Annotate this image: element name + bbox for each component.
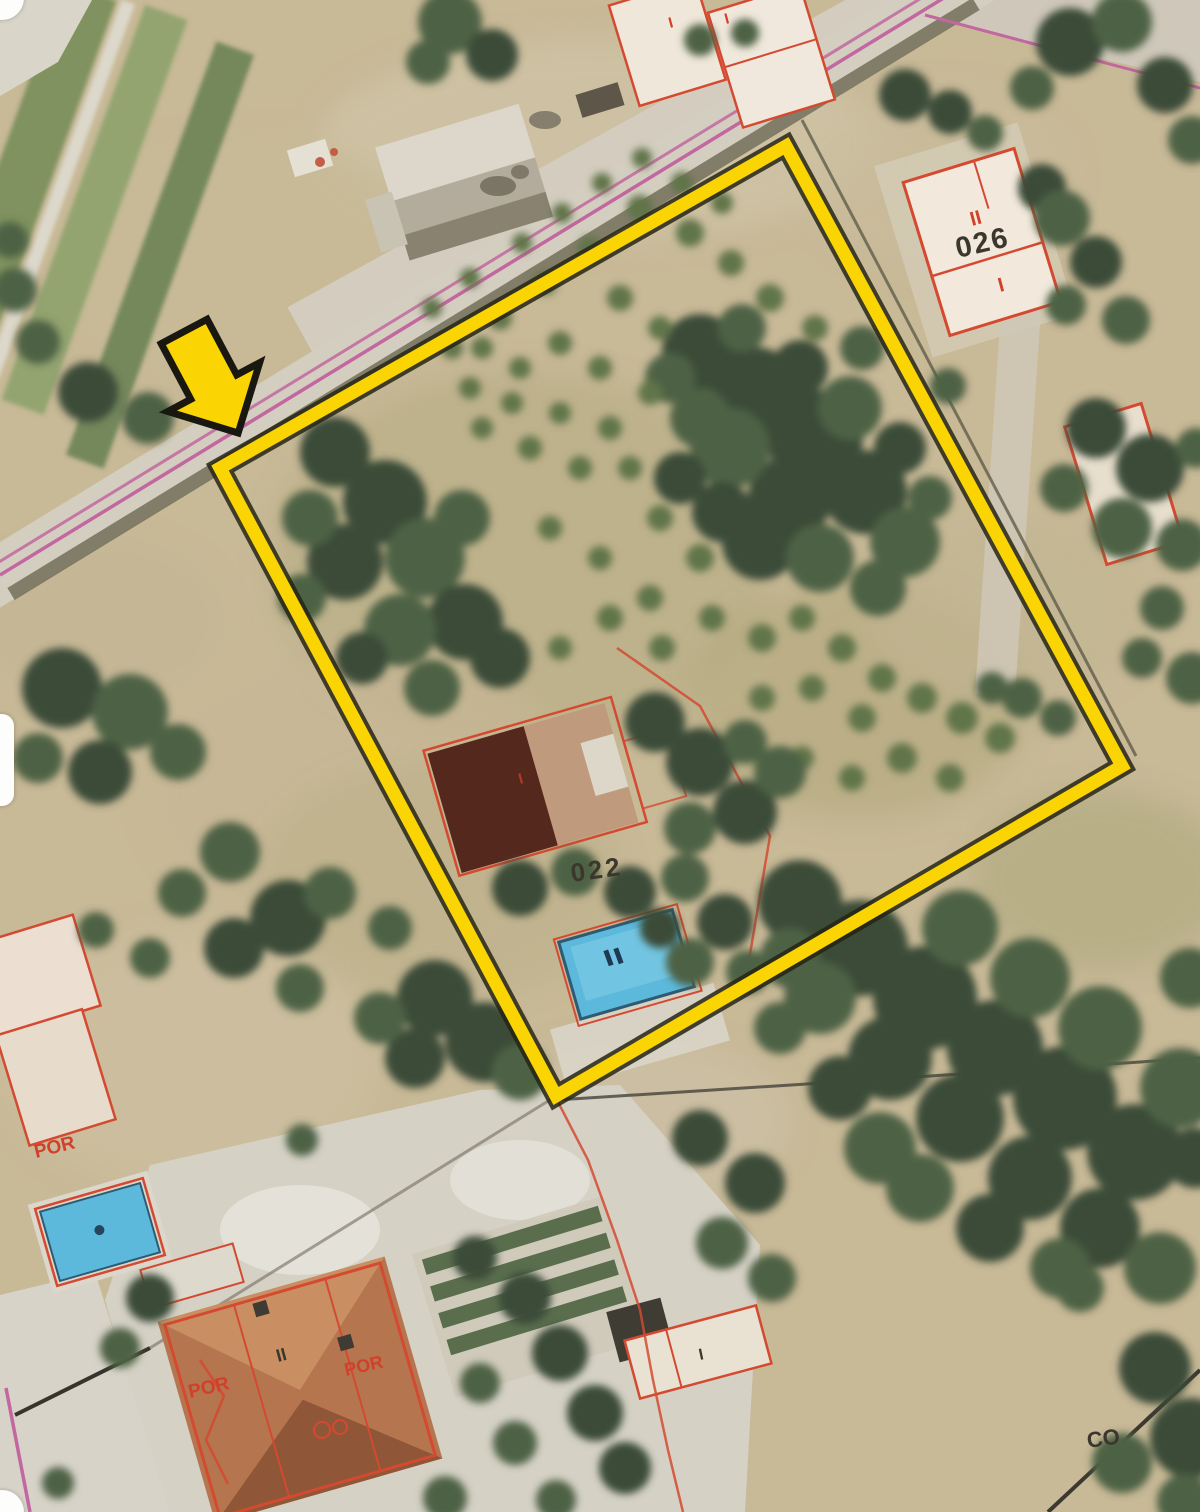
tree-canopy [1056, 1264, 1104, 1312]
tree-canopy [886, 1154, 954, 1222]
tree-canopy [648, 316, 672, 340]
pavement-highlight [220, 1185, 380, 1275]
tree-canopy [699, 605, 725, 631]
co-label: CO [1085, 1424, 1121, 1453]
tree-canopy [976, 672, 1008, 704]
tree-canopy [922, 890, 998, 966]
tree-canopy [985, 723, 1015, 753]
tree-canopy [1137, 57, 1193, 113]
tree-canopy [725, 1153, 785, 1213]
tree-canopy [460, 1363, 500, 1403]
tree-canopy [1046, 285, 1086, 325]
tree-canopy [1070, 236, 1122, 288]
tree-canopy [928, 90, 972, 134]
tree-canopy [661, 854, 709, 902]
tree-canopy [150, 724, 206, 780]
tree-canopy [336, 632, 388, 684]
tree-canopy [568, 456, 592, 480]
tree-canopy [786, 524, 854, 592]
tree-canopy [158, 869, 206, 917]
tree-canopy [58, 362, 118, 422]
tree-canopy [1002, 678, 1042, 718]
tree-canopy [282, 490, 338, 546]
tree-canopy [916, 1074, 1004, 1162]
tree-canopy [640, 908, 680, 948]
tree-canopy [946, 702, 978, 734]
tree-canopy [548, 636, 572, 660]
tree-canopy [848, 704, 876, 732]
tree-canopy [647, 505, 673, 531]
tree-canopy [453, 1236, 497, 1280]
tree-canopy [748, 1254, 796, 1302]
tree-canopy [637, 585, 663, 611]
tree-canopy [1092, 498, 1152, 558]
tree-canopy [200, 822, 260, 882]
tree-canopy [501, 392, 523, 414]
tree-canopy [789, 605, 815, 631]
tree-canopy [286, 1124, 318, 1156]
tree-canopy [990, 938, 1070, 1018]
tree-canopy [676, 219, 704, 247]
tree-canopy [1058, 986, 1142, 1070]
tree-canopy [13, 733, 63, 783]
tree-canopy [22, 648, 102, 728]
map-canvas: II 026 I 022 CO II POR POR POR I I I I [0, 0, 1200, 1512]
tree-canopy [597, 605, 623, 631]
tree-canopy [1034, 190, 1090, 246]
tree-canopy [664, 802, 716, 854]
tree-canopy [802, 315, 828, 341]
tree-canopy [607, 285, 633, 311]
tree-canopy [1140, 586, 1184, 630]
tree-canopy [404, 660, 460, 716]
tree-canopy [1122, 638, 1162, 678]
tree-canopy [552, 203, 572, 223]
tree-canopy [1040, 464, 1088, 512]
tree-canopy [459, 377, 481, 399]
tree-canopy [276, 964, 324, 1012]
tree-canopy [499, 1272, 551, 1324]
screenshot-edge-artifact [0, 714, 14, 806]
tree-canopy [466, 29, 518, 81]
tree-canopy [1124, 1232, 1196, 1304]
tree-canopy [354, 992, 406, 1044]
tree-canopy [471, 337, 493, 359]
tree-canopy [1040, 700, 1076, 736]
tree-canopy [567, 1385, 623, 1441]
tree-canopy [654, 452, 706, 504]
shadow-blob [480, 176, 516, 196]
tree-canopy [1010, 66, 1054, 110]
tree-canopy [649, 635, 675, 661]
tree-canopy [548, 331, 572, 355]
tree-canopy [493, 1421, 537, 1465]
tree-canopy [772, 340, 828, 396]
tree-canopy [126, 1274, 174, 1322]
tree-canopy [632, 148, 652, 168]
tree-canopy [936, 764, 964, 792]
tree-canopy [808, 1056, 872, 1120]
tree-canopy [684, 24, 716, 56]
tree-canopy [78, 912, 114, 948]
tree-canopy [592, 173, 612, 193]
tree-canopy [304, 867, 356, 919]
shadow-blob [529, 111, 561, 129]
tree-canopy [666, 938, 714, 986]
tree-canopy [850, 560, 906, 616]
tree-canopy [1116, 434, 1184, 502]
tree-canopy [588, 546, 612, 570]
tree-canopy [471, 417, 493, 439]
tree-canopy [868, 664, 896, 692]
tree-canopy [874, 422, 926, 474]
tree-canopy [799, 675, 825, 701]
red-marker-dot [315, 157, 325, 167]
tree-canopy [828, 634, 856, 662]
tree-canopy [839, 765, 865, 791]
tree-canopy [638, 381, 662, 405]
tree-canopy [470, 628, 530, 688]
tree-canopy [549, 402, 571, 424]
tree-canopy [422, 298, 442, 318]
tree-canopy [818, 376, 882, 440]
tree-canopy [538, 516, 562, 540]
tree-canopy [16, 320, 60, 364]
tree-canopy [42, 1467, 74, 1499]
tree-canopy [1066, 398, 1126, 458]
tree-canopy [588, 356, 612, 380]
tree-canopy [686, 544, 714, 572]
tree-canopy [122, 392, 174, 444]
tree-canopy [1119, 1332, 1191, 1404]
tree-canopy [879, 69, 931, 121]
tree-canopy [368, 906, 412, 950]
tree-canopy [718, 250, 744, 276]
tree-canopy [598, 416, 622, 440]
tree-canopy [509, 357, 531, 379]
tree-canopy [518, 436, 542, 460]
tree-canopy [618, 456, 642, 480]
tree-canopy [512, 233, 532, 253]
tree-canopy [723, 720, 767, 764]
tree-canopy [731, 19, 759, 47]
tree-canopy [887, 743, 917, 773]
shadow-blob [511, 165, 529, 179]
tree-canopy [204, 918, 264, 978]
tree-canopy [697, 894, 753, 950]
tree-canopy [956, 1194, 1024, 1262]
tree-canopy [68, 740, 132, 804]
tree-canopy [749, 685, 775, 711]
red-marker-dot [330, 148, 338, 156]
tree-canopy [908, 476, 952, 520]
tree-canopy [756, 284, 784, 312]
tree-canopy [434, 490, 490, 546]
tree-canopy [1102, 296, 1150, 344]
tree-canopy [907, 683, 937, 713]
tree-canopy [718, 304, 766, 352]
tree-canopy [532, 1325, 588, 1381]
tree-canopy [930, 368, 966, 404]
tree-canopy [406, 40, 450, 84]
tree-canopy [696, 1217, 748, 1269]
tree-canopy [754, 1002, 806, 1054]
tree-canopy [130, 938, 170, 978]
tree-canopy [492, 860, 548, 916]
tree-canopy [100, 1328, 140, 1368]
tree-canopy [672, 1110, 728, 1166]
tree-canopy [599, 1442, 651, 1494]
tree-canopy [460, 268, 480, 288]
aerial-cadastral-map: II 026 I 022 CO II POR POR POR I I I I [0, 0, 1200, 1512]
tree-canopy [748, 624, 776, 652]
tree-canopy [967, 115, 1003, 151]
